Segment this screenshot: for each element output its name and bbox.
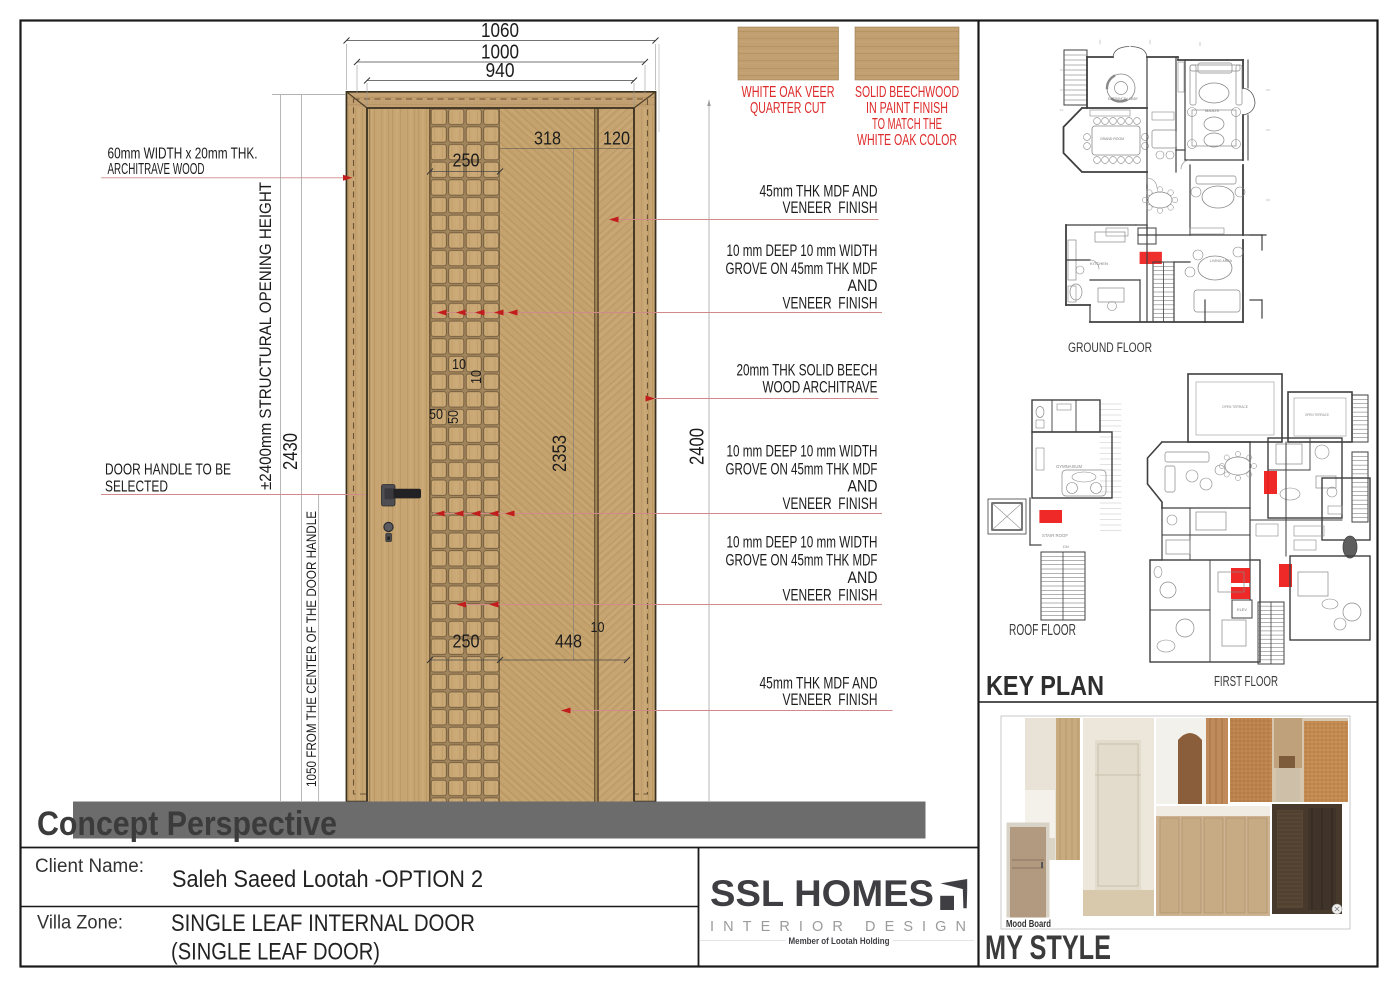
svg-text:AND: AND: [848, 569, 878, 587]
svg-text:GROVE ON 45mm THK MDF: GROVE ON 45mm THK MDF: [726, 260, 878, 278]
svg-text:FIRST FLOOR: FIRST FLOOR: [1214, 674, 1278, 690]
svg-text:Concept Perspective: Concept Perspective: [37, 805, 337, 843]
svg-text:KEY PLAN: KEY PLAN: [986, 670, 1104, 701]
svg-text:250: 250: [453, 151, 480, 171]
svg-text:1060: 1060: [481, 20, 519, 42]
svg-text:MAJLIS: MAJLIS: [1205, 108, 1219, 113]
svg-text:DOOR HANDLE TO BE: DOOR HANDLE TO BE: [105, 462, 231, 479]
svg-text:OPEN TERRACE: OPEN TERRACE: [1222, 404, 1248, 409]
svg-text:IN PAINT FINISH: IN PAINT FINISH: [866, 100, 948, 117]
svg-text:2430: 2430: [280, 433, 302, 470]
svg-text:LIVING AREA: LIVING AREA: [1210, 258, 1232, 263]
svg-text:SINGLE LEAF INTERNAL DOOR: SINGLE LEAF INTERNAL DOOR: [171, 910, 475, 937]
svg-text:50: 50: [445, 410, 462, 424]
svg-text:WOOD ARCHITRAVE: WOOD ARCHITRAVE: [763, 379, 878, 397]
svg-text:ARCHITRAVE WOOD: ARCHITRAVE WOOD: [108, 161, 205, 178]
svg-text:45mm THK MDF AND: 45mm THK MDF AND: [760, 675, 878, 693]
svg-text:45mm THK MDF AND: 45mm THK MDF AND: [760, 183, 878, 201]
svg-text:2400: 2400: [687, 428, 709, 465]
svg-text:Mood Board: Mood Board: [1006, 918, 1051, 930]
svg-text:VENEER FINISH: VENEER FINISH: [783, 495, 878, 513]
svg-text:VENEER FINISH: VENEER FINISH: [783, 295, 878, 313]
svg-text:±2400mm STRUCTURAL OPENING HEI: ±2400mm STRUCTURAL OPENING HEIGHT: [257, 182, 275, 490]
svg-text:SSL HOMES: SSL HOMES: [710, 873, 934, 914]
svg-text:QUARTER CUT: QUARTER CUT: [750, 100, 826, 117]
svg-text:ELEV: ELEV: [1237, 608, 1248, 612]
svg-text:50: 50: [429, 406, 443, 423]
svg-text:OPEN TERRACE: OPEN TERRACE: [1305, 412, 1329, 417]
svg-text:318: 318: [534, 129, 561, 149]
svg-text:DN: DN: [1063, 544, 1069, 549]
svg-text:MY STYLE: MY STYLE: [985, 929, 1111, 967]
svg-text:448: 448: [555, 632, 582, 652]
svg-text:250: 250: [453, 632, 480, 652]
svg-text:20mm THK SOLID BEECH: 20mm THK SOLID BEECH: [737, 362, 878, 380]
svg-text:940: 940: [486, 60, 515, 82]
svg-text:TO MATCH THE: TO MATCH THE: [872, 116, 942, 133]
svg-text:GYMNASIUM: GYMNASIUM: [1056, 464, 1082, 469]
svg-text:GROVE ON 45mm THK MDF: GROVE ON 45mm THK MDF: [726, 461, 878, 479]
svg-text:GRAND ROOM: GRAND ROOM: [1100, 136, 1124, 141]
svg-text:10 mm DEEP 10 mm WIDTH: 10 mm DEEP 10 mm WIDTH: [727, 534, 878, 552]
svg-text:GROUND FLOOR: GROUND FLOOR: [1068, 340, 1152, 355]
svg-text:STAIR ROOF: STAIR ROOF: [1042, 533, 1068, 538]
svg-text:(SINGLE LEAF DOOR): (SINGLE LEAF DOOR): [171, 939, 380, 966]
svg-text:Client Name:: Client Name:: [35, 856, 144, 877]
svg-text:Saleh Saeed Lootah -OPTION 2: Saleh Saeed Lootah -OPTION 2: [172, 866, 483, 893]
svg-text:GROVE ON 45mm THK MDF: GROVE ON 45mm THK MDF: [726, 552, 878, 570]
svg-text:ROOF FLOOR: ROOF FLOOR: [1009, 622, 1076, 639]
svg-text:10 mm DEEP 10 mm WIDTH: 10 mm DEEP 10 mm WIDTH: [727, 443, 878, 461]
svg-text:KITCHEN: KITCHEN: [1090, 261, 1108, 266]
svg-text:10: 10: [452, 356, 466, 373]
svg-text:1050 FROM THE CENTER OF THE DO: 1050 FROM THE CENTER OF THE DOOR HANDLE: [304, 511, 319, 787]
svg-text:AND: AND: [848, 478, 878, 496]
svg-text:Member of Lootah Holding: Member of Lootah Holding: [789, 936, 890, 947]
svg-text:10: 10: [468, 370, 485, 384]
svg-text:WHITE OAK VEER: WHITE OAK VEER: [742, 84, 835, 101]
svg-text:ENTRANCE LOBBY: ENTRANCE LOBBY: [1108, 96, 1138, 101]
svg-text:2353: 2353: [550, 435, 571, 472]
svg-text:VENEER FINISH: VENEER FINISH: [783, 199, 878, 217]
svg-text:10 mm DEEP 10 mm WIDTH: 10 mm DEEP 10 mm WIDTH: [727, 242, 878, 260]
svg-text:10: 10: [591, 619, 605, 636]
svg-text:Villa Zone:: Villa Zone:: [37, 913, 123, 934]
svg-text:120: 120: [603, 129, 630, 149]
svg-text:AND: AND: [848, 277, 878, 295]
svg-text:SOLID BEECHWOOD: SOLID BEECHWOOD: [855, 84, 959, 101]
svg-text:VENEER FINISH: VENEER FINISH: [783, 587, 878, 605]
svg-text:VENEER FINISH: VENEER FINISH: [783, 691, 878, 709]
svg-text:WHITE OAK COLOR: WHITE OAK COLOR: [857, 132, 957, 149]
svg-text:SELECTED: SELECTED: [105, 479, 168, 496]
svg-text:60mm WIDTH x 20mm THK.: 60mm WIDTH x 20mm THK.: [108, 146, 258, 163]
